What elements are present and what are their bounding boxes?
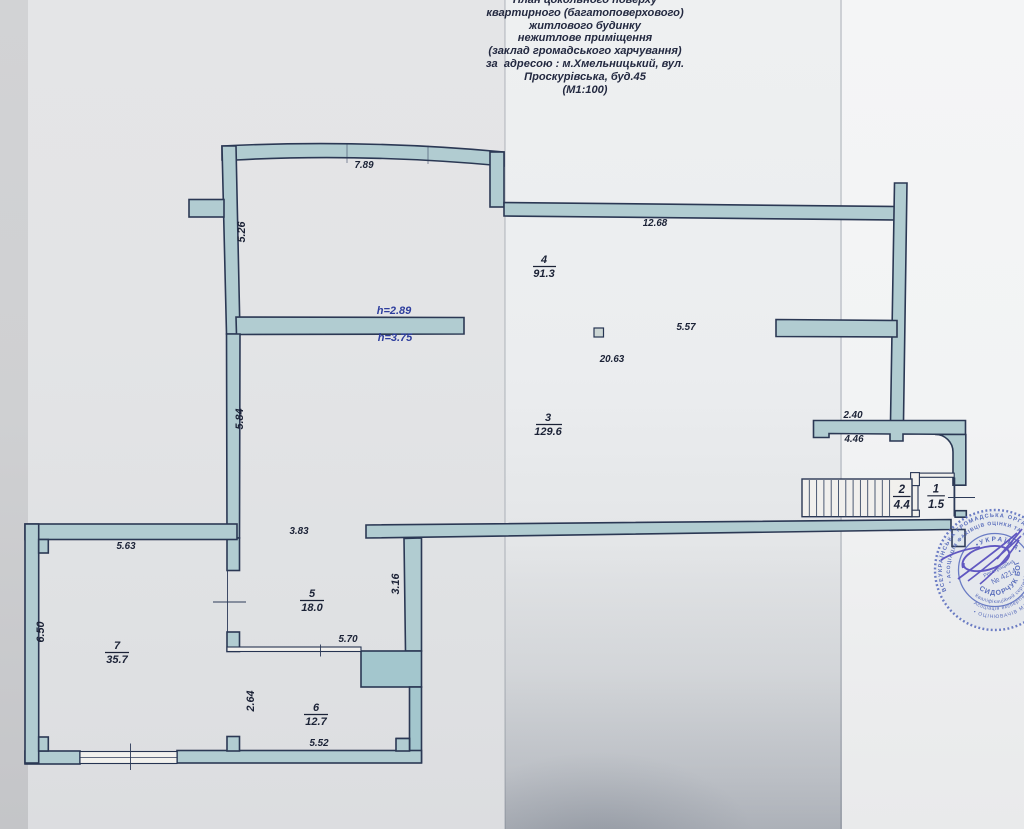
- svg-text:12.7: 12.7: [305, 716, 327, 728]
- svg-text:1: 1: [933, 484, 939, 496]
- svg-text:2.40: 2.40: [842, 410, 863, 421]
- svg-text:7.89: 7.89: [354, 160, 374, 171]
- svg-text:2: 2: [898, 484, 906, 496]
- svg-text:5.26: 5.26: [236, 220, 248, 242]
- svg-text:6.50: 6.50: [35, 621, 47, 642]
- svg-text:5.57: 5.57: [676, 322, 696, 333]
- svg-text:3.16: 3.16: [390, 572, 402, 594]
- svg-text:35.7: 35.7: [106, 654, 128, 666]
- svg-text:5.70: 5.70: [338, 634, 358, 645]
- svg-text:h=2.89: h=2.89: [377, 305, 412, 317]
- svg-text:5.63: 5.63: [116, 541, 136, 552]
- svg-text:5: 5: [309, 588, 316, 600]
- svg-text:h=3.75: h=3.75: [378, 332, 413, 344]
- svg-text:3.83: 3.83: [289, 526, 309, 537]
- svg-text:6: 6: [313, 702, 320, 714]
- svg-text:5.84: 5.84: [234, 408, 246, 429]
- svg-text:4.4: 4.4: [893, 500, 911, 512]
- svg-text:12.68: 12.68: [643, 218, 668, 229]
- svg-text:2.64: 2.64: [245, 690, 257, 712]
- svg-text:20.63: 20.63: [599, 354, 625, 365]
- svg-text:3: 3: [545, 412, 551, 424]
- svg-text:18.0: 18.0: [301, 602, 323, 614]
- svg-text:4: 4: [540, 254, 547, 266]
- svg-text:1.5: 1.5: [928, 499, 945, 511]
- svg-text:129.6: 129.6: [534, 426, 562, 438]
- svg-text:СИДОРЧУК БОГДАН: СИДОРЧУК БОГДАН: [0, 45, 1024, 829]
- svg-text:4.46: 4.46: [843, 434, 864, 445]
- svg-text:91.3: 91.3: [533, 268, 554, 280]
- svg-text:5.52: 5.52: [309, 738, 329, 749]
- svg-text:7: 7: [114, 640, 121, 652]
